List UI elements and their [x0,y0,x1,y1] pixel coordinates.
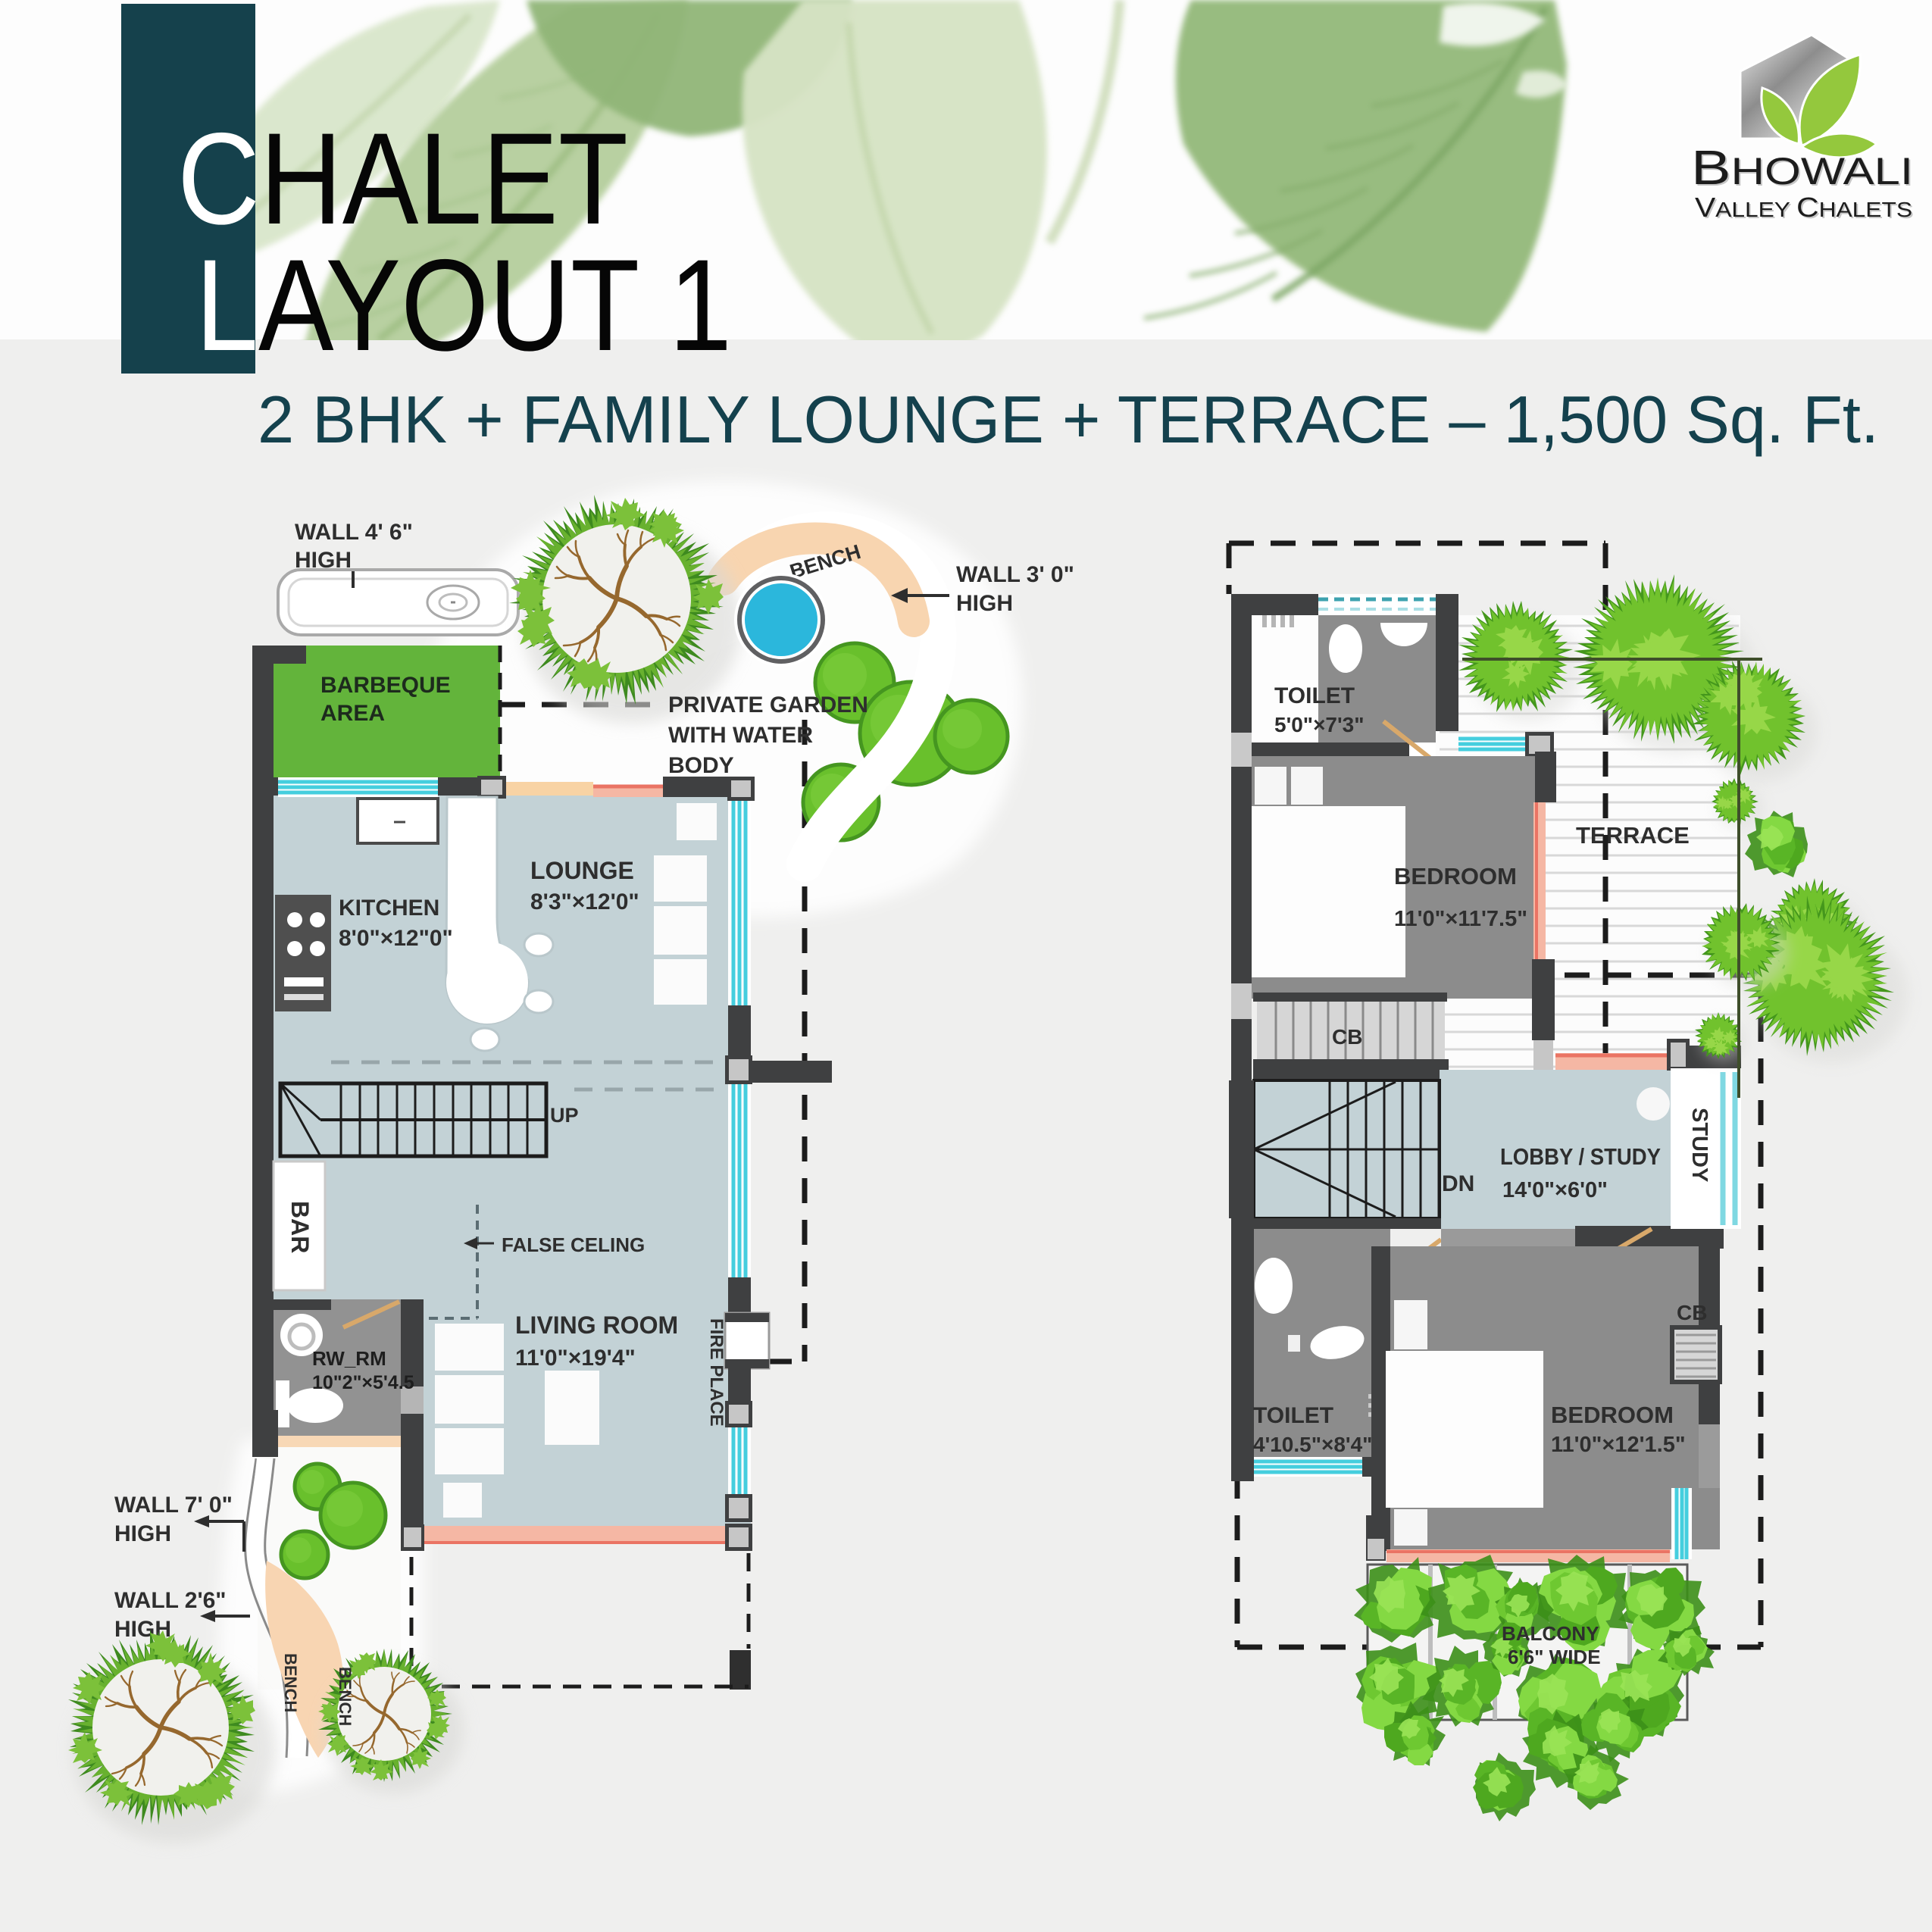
svg-text:BENCH: BENCH [336,1667,355,1726]
svg-text:BAR: BAR [286,1201,314,1253]
svg-text:CHALET: CHALET [177,106,628,252]
svg-text:WALL 3' 0": WALL 3' 0" [956,562,1074,587]
svg-text:KITCHEN: KITCHEN [339,896,439,921]
svg-text:STUDY: STUDY [1687,1108,1712,1182]
svg-text:14'0"×6'0": 14'0"×6'0" [1502,1178,1608,1202]
svg-text:DN: DN [1442,1171,1474,1196]
svg-text:10"2"×5'4.5: 10"2"×5'4.5 [312,1372,414,1393]
svg-text:HIGH: HIGH [956,591,1013,616]
svg-text:BEDROOM: BEDROOM [1394,863,1517,889]
svg-text:2 BHK + FAMILY LOUNGE + TERRAC: 2 BHK + FAMILY LOUNGE + TERRACE – 1,500 … [258,382,1879,457]
svg-text:11'0"×19'4": 11'0"×19'4" [515,1346,636,1371]
svg-text:BALCONY: BALCONY [1502,1622,1599,1645]
svg-text:TOILET: TOILET [1274,683,1355,708]
svg-text:5'0"×7'3": 5'0"×7'3" [1274,713,1365,736]
svg-text:PRIVATE GARDEN: PRIVATE GARDEN [668,692,868,717]
svg-text:8'3"×12'0": 8'3"×12'0" [530,889,639,914]
svg-text:TOILET: TOILET [1253,1403,1333,1428]
svg-text:LAYOUT 1: LAYOUT 1 [195,233,732,378]
svg-text:LOUNGE: LOUNGE [530,857,634,884]
svg-text:LOBBY / STUDY: LOBBY / STUDY [1500,1143,1661,1170]
svg-text:BENCH: BENCH [281,1653,300,1712]
svg-text:FALSE CELING: FALSE CELING [502,1233,645,1256]
svg-text:WITH WATER: WITH WATER [668,723,813,748]
svg-text:RW_RM: RW_RM [312,1347,386,1370]
svg-text:WALL 4' 6": WALL 4' 6" [295,520,413,545]
svg-text:CB: CB [1332,1025,1362,1049]
svg-text:BODY: BODY [668,753,734,778]
svg-text:TERRACE: TERRACE [1576,822,1690,849]
svg-text:8'0"×12"0": 8'0"×12"0" [339,926,453,951]
svg-text:UP: UP [550,1104,579,1127]
svg-text:11'0"×11'7.5": 11'0"×11'7.5" [1394,907,1527,931]
svg-text:CB: CB [1677,1301,1707,1324]
svg-text:4'10.5"×8'4": 4'10.5"×8'4" [1253,1433,1372,1456]
svg-text:FIRE PLACE: FIRE PLACE [706,1318,727,1427]
svg-text:11'0"×12'1.5": 11'0"×12'1.5" [1551,1433,1686,1457]
svg-text:BARBEQUE: BARBEQUE [320,673,451,698]
svg-text:HIGH: HIGH [295,548,352,573]
svg-text:LIVING ROOM: LIVING ROOM [515,1311,678,1339]
svg-text:HIGH: HIGH [114,1521,171,1546]
svg-text:WALL 7' 0": WALL 7' 0" [114,1493,233,1518]
svg-text:WALL 2'6": WALL 2'6" [114,1588,227,1613]
svg-text:6'6" WIDE: 6'6" WIDE [1508,1646,1601,1668]
svg-text:BEDROOM: BEDROOM [1551,1402,1674,1428]
svg-text:AREA: AREA [320,701,385,726]
